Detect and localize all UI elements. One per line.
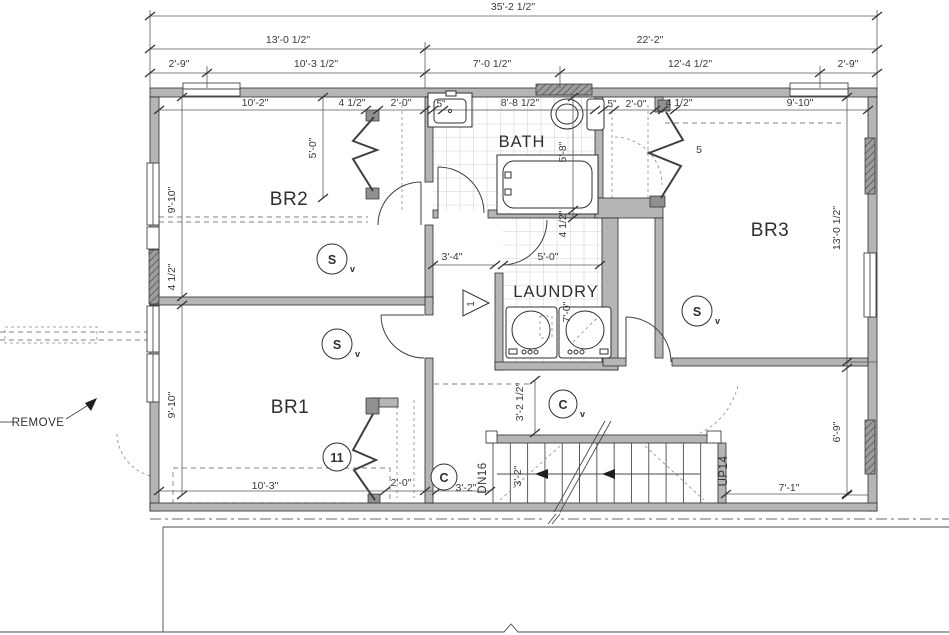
dim-3-2-landing: 3'-2"	[456, 482, 477, 494]
dim-10-3-half: 10'-3 1/2"	[294, 58, 339, 70]
dim-4half-left: 4 1/2"	[166, 263, 178, 290]
smoke-detector-symbol: S v	[317, 244, 355, 274]
br1-door	[381, 315, 424, 358]
room-label-bath: BATH	[499, 133, 546, 151]
dimension-ticks	[145, 12, 882, 499]
dim-7-0-half: 7'-0 1/2"	[473, 58, 512, 70]
room-label-laundry: LAUNDRY	[513, 283, 599, 301]
door-tag-11: 11	[323, 443, 351, 471]
dim-7-1: 7'-1"	[779, 482, 800, 494]
smoke-detector-symbol: S v	[682, 296, 720, 326]
room-label-br3: BR3	[751, 220, 789, 241]
fixtures	[428, 91, 611, 358]
floor-plan-page: REMOVE 35'-2 1/2" 13'-0 1/2" 22'-2" 2'-9…	[0, 0, 949, 635]
smoke-letter: S	[333, 338, 341, 352]
infilled-window	[865, 138, 875, 194]
smoke-sub: v	[350, 264, 355, 274]
stair-down-label: DN16	[477, 462, 489, 493]
dim-2-9-left: 2'-9"	[169, 58, 190, 70]
bathtub	[497, 155, 598, 214]
dim-2-0-br2closet: 2'-0"	[391, 97, 412, 109]
infilled-window	[865, 420, 875, 474]
smoke-detector-symbol: S v	[322, 329, 360, 359]
window	[147, 354, 159, 402]
dim-13-0-half-br3: 13'-0 1/2"	[831, 206, 843, 251]
room-label-br1: BR1	[271, 397, 309, 418]
dim-9-10-br3: 9'-10"	[787, 97, 814, 109]
co-letter: C	[558, 398, 567, 412]
smoke-letter: S	[693, 305, 701, 319]
dim-12-4-half: 12'-4 1/2"	[668, 58, 713, 70]
smoke-letter: S	[328, 253, 336, 267]
floor-plan-drawing: REMOVE 35'-2 1/2" 13'-0 1/2" 22'-2" 2'-9…	[0, 0, 949, 635]
dim-4half-br2: 4 1/2"	[338, 97, 365, 109]
infilled-window	[536, 84, 592, 95]
dim-5in-sink: 5"	[436, 99, 446, 110]
dim-right-span: 22'-2"	[637, 34, 664, 46]
dim-5in-closet: 5"	[607, 99, 617, 110]
dim-9-10-br2-left: 9'-10"	[166, 186, 178, 213]
dim-6-9-right: 6'-9"	[831, 421, 843, 442]
br3-door	[626, 317, 671, 362]
dim-8-8-half: 8'-8 1/2"	[501, 97, 540, 109]
section-marker-number: 1	[466, 301, 477, 307]
br2-closet-bifold	[353, 117, 377, 191]
stair-up-label: UP14	[718, 456, 730, 487]
dim-4half-bath: 4 1/2"	[557, 210, 569, 237]
room-label-br2: BR2	[270, 189, 308, 210]
tag-11-number: 11	[330, 451, 343, 465]
dim-5-0-br2: 5'-0"	[307, 137, 319, 158]
dim-7-0-laundry: 7'-0"	[561, 301, 573, 322]
smoke-sub: v	[715, 316, 720, 326]
toilet	[551, 99, 604, 130]
dim-2-9-right: 2'-9"	[838, 58, 859, 70]
window	[147, 306, 159, 352]
co-detector-symbol: C v	[549, 390, 585, 419]
dim-3-4-hall: 3'-4"	[442, 251, 463, 263]
section-marker-triangle: 1	[463, 290, 489, 316]
dim-10-3-br1: 10'-3"	[252, 480, 279, 492]
dim-5-8-bath: 5'-8"	[557, 141, 569, 162]
dim-2-0-br1closet: 2'-0"	[391, 477, 412, 489]
br3-closet-bifold	[649, 112, 683, 198]
window	[183, 83, 240, 96]
dim-2-0-linen: 2'-0"	[626, 98, 647, 110]
dimension-text-top: 35'-2 1/2" 13'-0 1/2" 22'-2" 2'-9" 10'-3…	[169, 1, 859, 70]
dim-left-span: 13'-0 1/2"	[266, 34, 311, 46]
dim-10-2: 10'-2"	[242, 97, 269, 109]
co-sub: v	[580, 409, 585, 419]
infilled-window	[149, 250, 159, 304]
dim-5-0-laundry: 5'-0"	[538, 251, 559, 263]
dim-overall: 35'-2 1/2"	[491, 1, 536, 13]
co-detector-symbol: C	[431, 464, 457, 490]
smoke-sub: v	[355, 349, 360, 359]
dim-3-2-stair: 3'-2"	[512, 465, 524, 486]
co-letter: C	[439, 471, 448, 485]
dim-4half-br3: 4 1/2"	[665, 97, 692, 109]
bath-door	[438, 167, 484, 213]
window	[864, 253, 876, 317]
door-tag-5: 5	[696, 144, 702, 156]
dimension-lines	[150, 10, 877, 495]
dim-3-2-half-landing: 3'-2 1/2"	[514, 383, 526, 422]
br1-closet-bifold	[353, 414, 376, 500]
window	[790, 83, 848, 96]
washer	[506, 307, 557, 358]
dim-9-10-br1-left: 9'-10"	[166, 391, 178, 418]
lower-level-outline	[0, 512, 949, 632]
remove-annotation: REMOVE	[0, 398, 97, 429]
br2-door	[378, 182, 421, 225]
remove-label: REMOVE	[12, 417, 65, 429]
window	[147, 227, 159, 249]
window	[147, 163, 159, 225]
